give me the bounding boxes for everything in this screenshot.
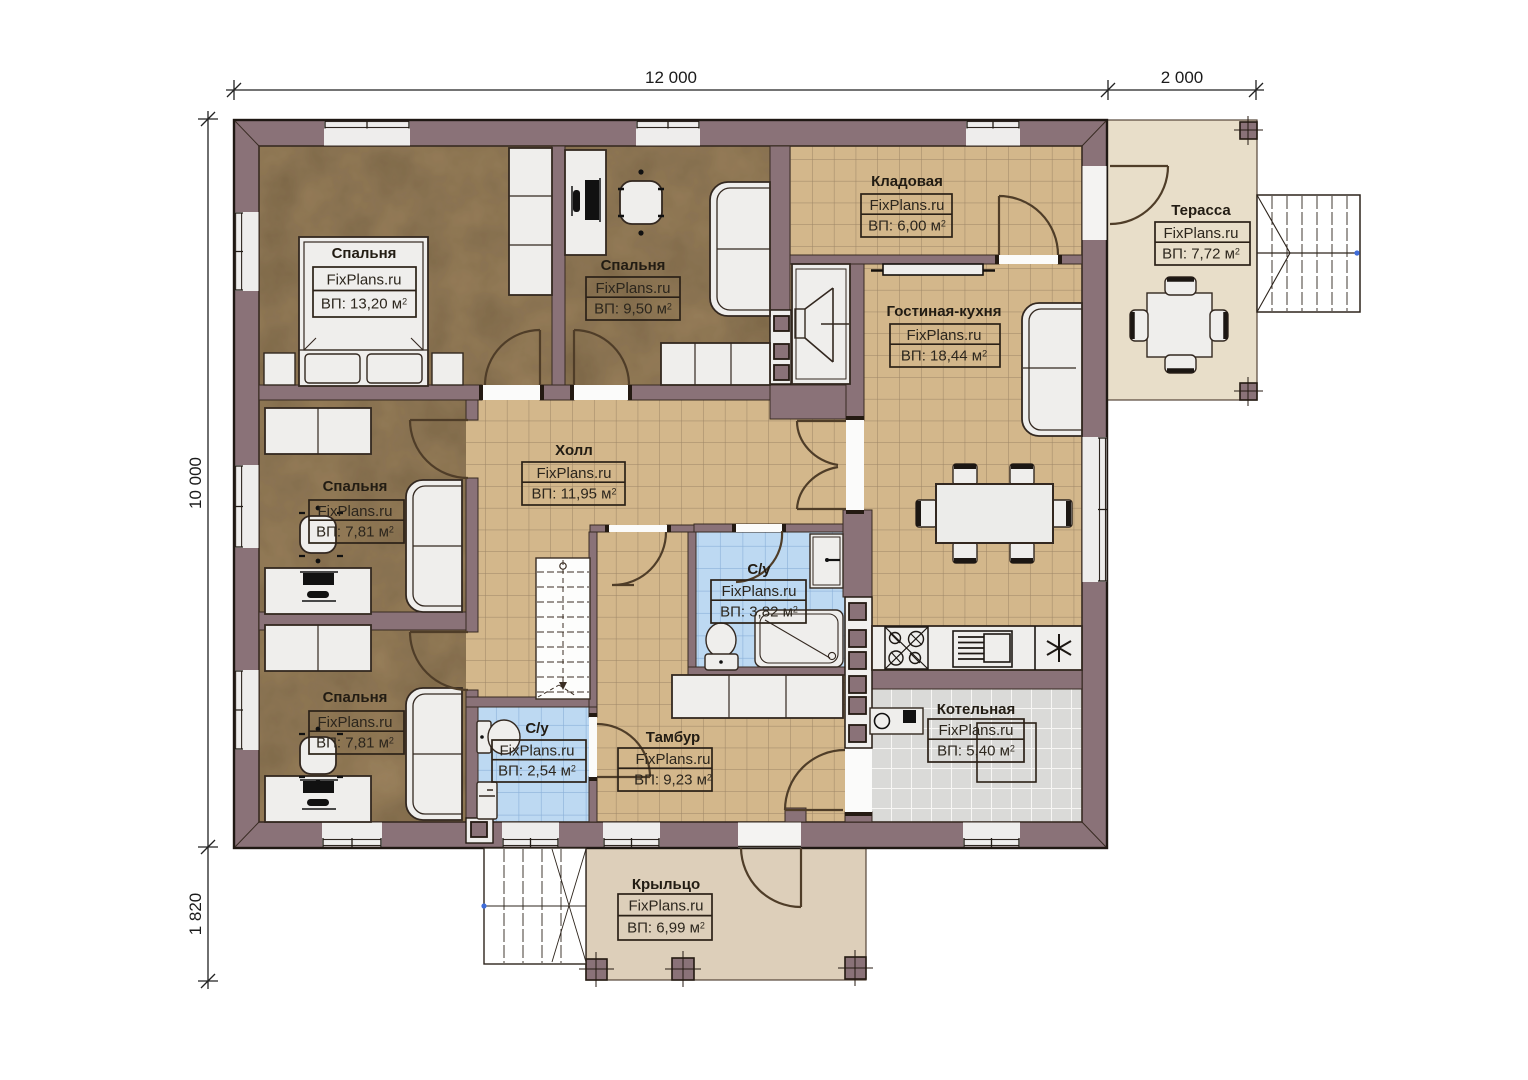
svg-text:ВП: 9,50 м2: ВП: 9,50 м2: [594, 300, 672, 317]
svg-text:Кладовая: Кладовая: [871, 173, 943, 190]
svg-text:Спальня: Спальня: [601, 257, 666, 274]
svg-text:FixPlans.ru: FixPlans.ru: [628, 898, 703, 915]
svg-text:FixPlans.ru: FixPlans.ru: [499, 743, 574, 760]
svg-text:Крыльцо: Крыльцо: [632, 876, 700, 893]
svg-text:ВП: 6,99 м2: ВП: 6,99 м2: [627, 920, 705, 937]
svg-text:FixPlans.ru: FixPlans.ru: [536, 465, 611, 482]
svg-text:ВП: 11,95 м2: ВП: 11,95 м2: [531, 485, 616, 502]
svg-text:FixPlans.ru: FixPlans.ru: [1163, 225, 1238, 242]
svg-text:FixPlans.ru: FixPlans.ru: [938, 722, 1013, 739]
svg-text:FixPlans.ru: FixPlans.ru: [721, 583, 796, 600]
svg-text:1 820: 1 820: [186, 893, 205, 936]
svg-text:12 000: 12 000: [645, 68, 697, 87]
svg-text:ВП: 9,23 м2: ВП: 9,23 м2: [634, 771, 712, 788]
svg-text:Тамбур: Тамбур: [646, 729, 700, 746]
svg-text:ВП: 5,40 м2: ВП: 5,40 м2: [937, 742, 1015, 759]
svg-text:ВП: 6,00 м2: ВП: 6,00 м2: [868, 217, 946, 234]
svg-text:ВП: 13,20 м2: ВП: 13,20 м2: [321, 296, 407, 313]
svg-text:FixPlans.ru: FixPlans.ru: [869, 197, 944, 214]
svg-text:2 000: 2 000: [1161, 68, 1204, 87]
svg-text:С/у: С/у: [525, 720, 549, 737]
svg-text:ВП: 18,44 м2: ВП: 18,44 м2: [901, 347, 987, 364]
svg-text:ВП: 2,54 м2: ВП: 2,54 м2: [498, 763, 576, 780]
svg-text:Терасса: Терасса: [1171, 202, 1231, 219]
svg-text:FixPlans.ru: FixPlans.ru: [317, 503, 392, 520]
svg-text:Спальня: Спальня: [323, 478, 388, 495]
svg-text:ВП: 7,72 м2: ВП: 7,72 м2: [1162, 245, 1240, 262]
svg-text:Спальня: Спальня: [323, 689, 388, 706]
svg-text:Холл: Холл: [555, 442, 593, 459]
svg-text:FixPlans.ru: FixPlans.ru: [906, 327, 981, 344]
svg-text:10 000: 10 000: [186, 457, 205, 509]
svg-text:FixPlans.ru: FixPlans.ru: [635, 751, 710, 768]
svg-text:Котельная: Котельная: [937, 701, 1016, 718]
svg-text:С/у: С/у: [747, 561, 771, 578]
svg-text:FixPlans.ru: FixPlans.ru: [595, 280, 670, 297]
svg-text:Спальня: Спальня: [332, 245, 397, 262]
svg-text:ВП: 7,81 м2: ВП: 7,81 м2: [316, 734, 394, 751]
svg-text:ВП: 3,82 м2: ВП: 3,82 м2: [720, 603, 798, 620]
svg-text:FixPlans.ru: FixPlans.ru: [317, 714, 392, 731]
svg-text:Гостиная-кухня: Гостиная-кухня: [887, 303, 1002, 320]
svg-text:ВП: 7,81 м2: ВП: 7,81 м2: [316, 523, 394, 540]
svg-text:FixPlans.ru: FixPlans.ru: [326, 272, 401, 289]
